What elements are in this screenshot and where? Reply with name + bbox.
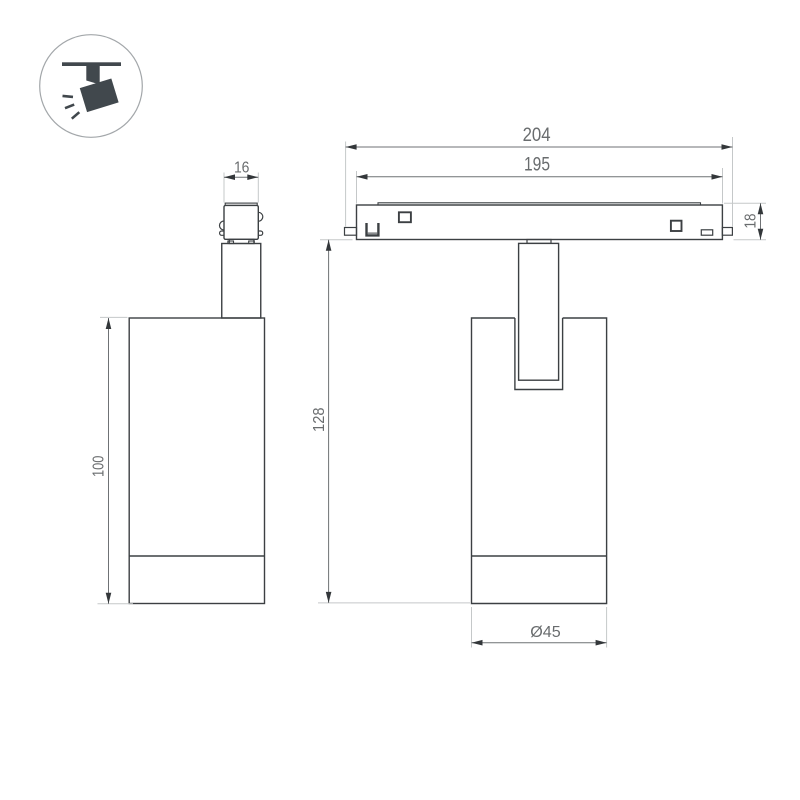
svg-text:195: 195 bbox=[524, 155, 550, 176]
svg-text:204: 204 bbox=[523, 125, 551, 146]
svg-text:16: 16 bbox=[234, 159, 250, 176]
svg-text:Ø45: Ø45 bbox=[530, 624, 561, 641]
svg-text:128: 128 bbox=[311, 407, 328, 432]
svg-text:100: 100 bbox=[91, 455, 108, 477]
svg-text:18: 18 bbox=[743, 214, 760, 229]
